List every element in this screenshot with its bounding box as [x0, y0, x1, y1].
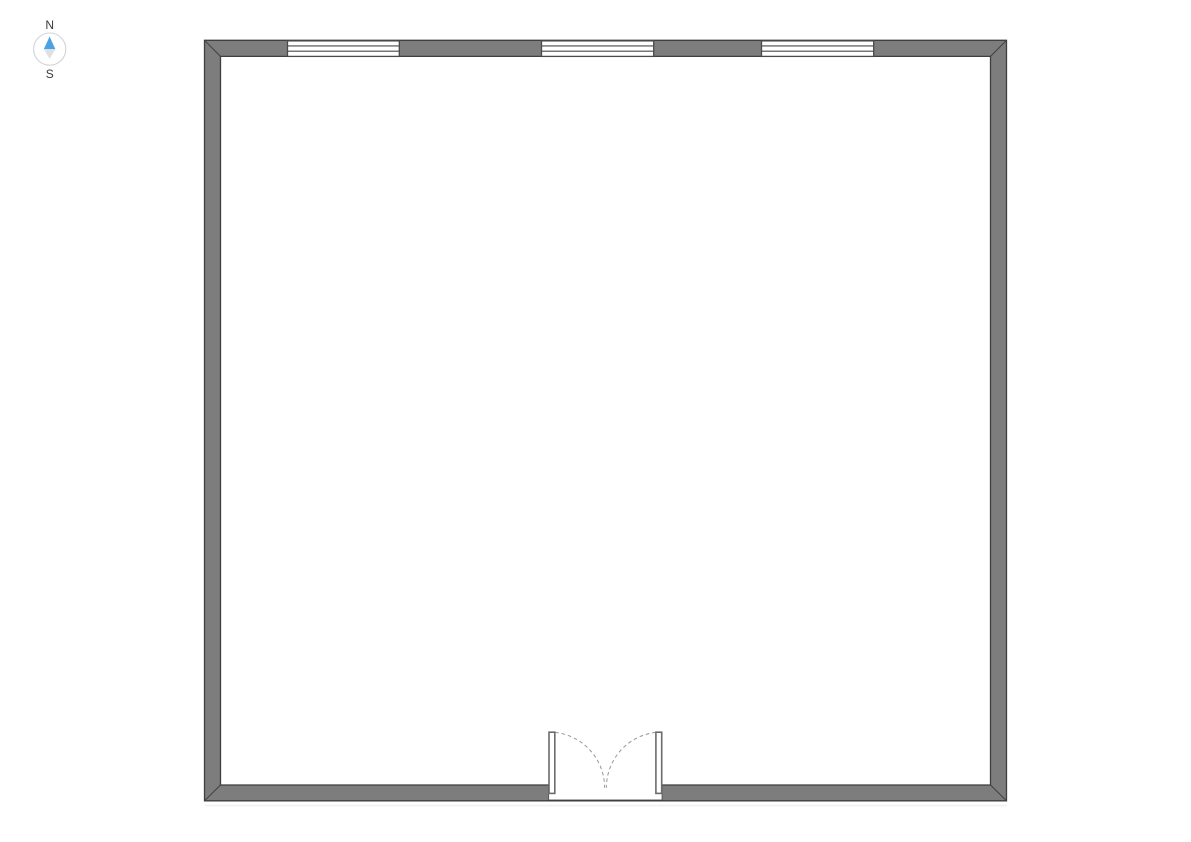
- svg-text:N: N: [45, 18, 54, 32]
- svg-text:S: S: [46, 67, 54, 81]
